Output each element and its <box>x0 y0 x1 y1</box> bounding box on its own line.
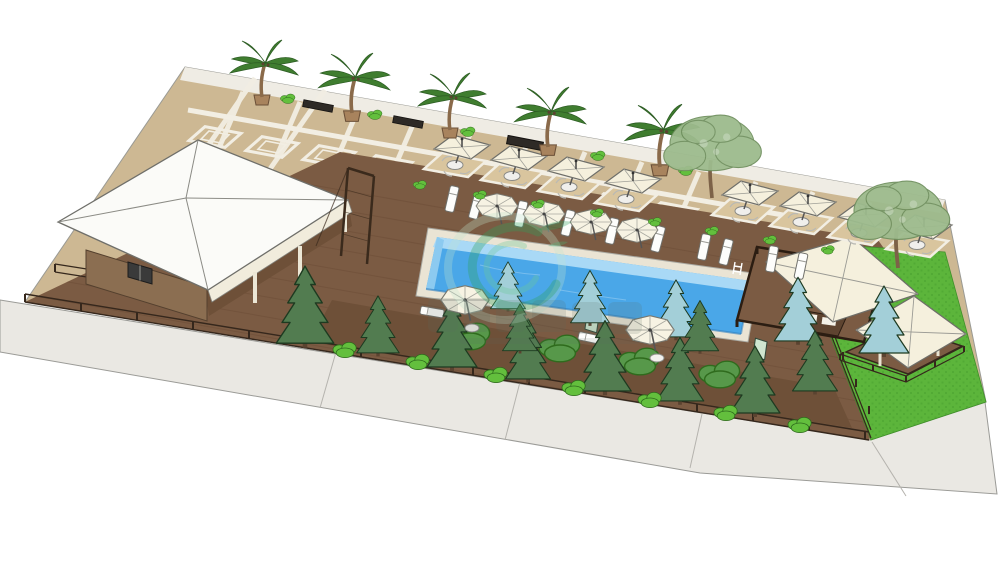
render-canvas: 3D landscape visualization — poolside te… <box>0 0 1000 570</box>
garden-table <box>650 354 664 362</box>
scene-svg: 3D landscape visualization — poolside te… <box>0 0 1000 570</box>
